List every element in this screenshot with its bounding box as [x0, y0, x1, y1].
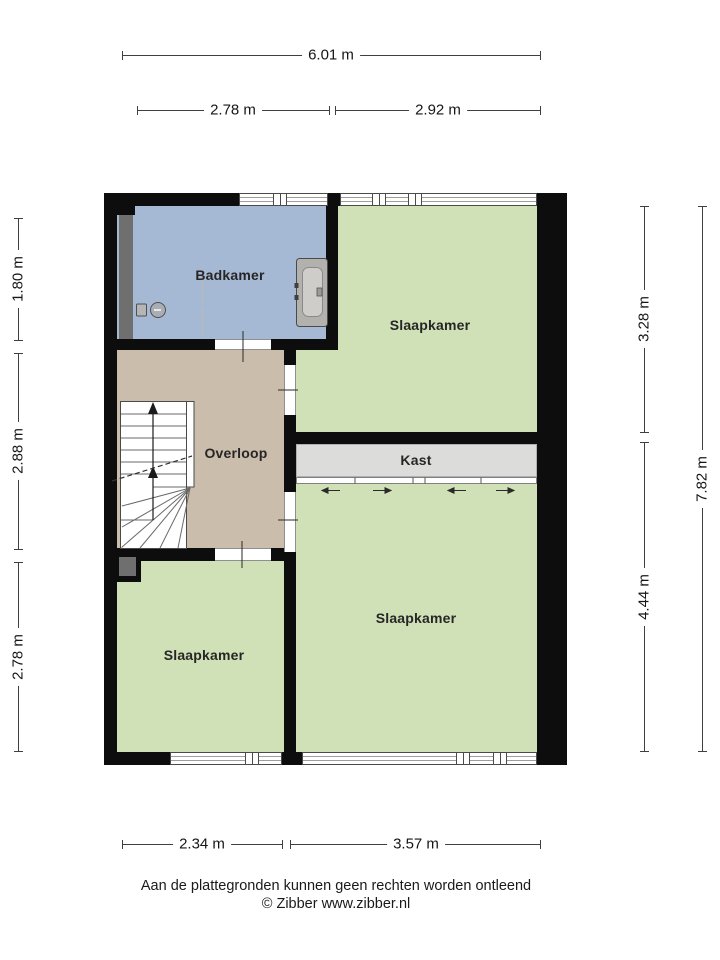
footer-credit: © Zibber www.zibber.nl [104, 895, 568, 913]
dim-right-total: 7.82 m [694, 450, 711, 508]
sliding-door-arrows [322, 488, 514, 493]
dim-top-left: 2.78 m [204, 102, 262, 119]
dim-left-top: 1.80 m [10, 250, 27, 308]
footer-disclaimer: Aan de plattegronden kunnen geen rechten… [104, 877, 568, 895]
label-overloop: Overloop [204, 445, 267, 461]
label-slaapkamer-top: Slaapkamer [390, 317, 471, 333]
dim-top-total: 6.01 m [302, 47, 360, 64]
dim-left-middle: 2.88 m [10, 422, 27, 480]
dim-bottom-right: 3.57 m [387, 836, 445, 853]
label-slaapkamer-left: Slaapkamer [164, 647, 245, 663]
stairs-icon [112, 402, 194, 549]
stairs-stringer [187, 402, 195, 488]
floorplan-canvas: Badkamer Slaapkamer Overloop Kast Slaapk… [0, 0, 720, 960]
label-badkamer: Badkamer [195, 267, 264, 283]
dim-left-bottom: 2.78 m [10, 628, 27, 686]
footer: Aan de plattegronden kunnen geen rechten… [104, 877, 568, 913]
dim-top-right: 2.92 m [409, 102, 467, 119]
dim-right-bottom: 4.44 m [636, 568, 653, 626]
track-ticks [355, 478, 481, 484]
label-slaapkamer-right: Slaapkamer [376, 610, 457, 626]
dim-bottom-left: 2.34 m [173, 836, 231, 853]
toilet-icon [137, 303, 166, 318]
plan-detail-overlay [0, 0, 720, 960]
bathtub-icon [295, 259, 328, 327]
label-kast: Kast [400, 452, 431, 468]
dim-right-top: 3.28 m [636, 290, 653, 348]
